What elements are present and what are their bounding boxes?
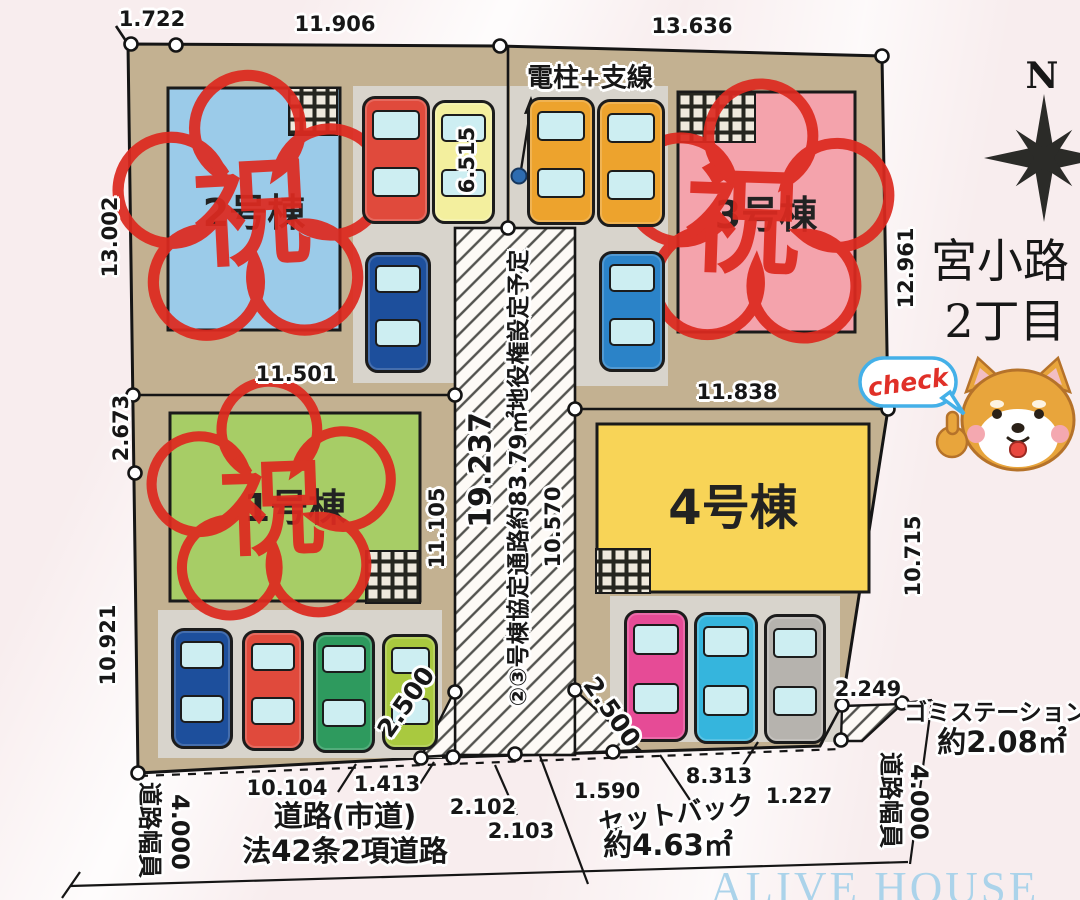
road-name-line2: 法42条2項道路 — [242, 828, 448, 870]
car-icon — [171, 628, 233, 749]
car-icon — [694, 612, 758, 744]
dim-road-length: 19.237 — [464, 412, 499, 528]
dim-road-side-lot4: 10.570 — [541, 486, 565, 567]
dim-bottom-2103: 2.103 — [488, 819, 554, 843]
car-icon — [313, 632, 375, 753]
road-width-value-right: 4.000 — [905, 764, 933, 840]
dim-bottom-2102: 2.102 — [450, 795, 516, 819]
dim-between-right: 11.838 — [696, 380, 777, 404]
svg-text:祝: 祝 — [190, 141, 315, 285]
car-icon — [527, 97, 595, 225]
building-4-label: 4号棟 — [668, 480, 798, 536]
dim-top-offset: 1.722 — [119, 7, 185, 31]
dim-top-lot3: 13.636 — [651, 14, 732, 38]
dim-right-lot3: 12.961 — [894, 227, 918, 308]
dim-left-lot1: 10.921 — [96, 604, 120, 685]
dim-right-lot4: 10.715 — [901, 515, 925, 596]
road-width-label-left: 道路幅員 — [135, 782, 170, 878]
compass-icon — [984, 94, 1080, 222]
compass-n-label: N — [1026, 55, 1059, 97]
setback-area: 約4.63㎡ — [603, 822, 733, 864]
dim-left-lot2: 13.002 — [98, 196, 122, 277]
garbage-area: 約2.08㎡ — [937, 719, 1067, 761]
dim-top-lot2: 11.906 — [294, 12, 375, 36]
car-icon — [242, 630, 304, 751]
utility-pole-label: 電柱+支線 — [527, 58, 653, 95]
car-icon — [597, 99, 665, 227]
dim-bottom-1227: 1.227 — [766, 784, 832, 808]
car-icon — [599, 251, 665, 372]
dim-between-left: 11.501 — [255, 362, 336, 386]
watermark: ALIVE HOUSE — [710, 862, 1039, 900]
dim-road-side-lot1: 11.105 — [425, 487, 449, 568]
dim-right-garbage: 2.249 — [835, 677, 901, 701]
dim-left-offset: 2.673 — [109, 395, 133, 461]
area-title-line1: 宮小路 — [931, 225, 1069, 291]
check-bubble: check — [860, 358, 964, 414]
car-icon — [362, 96, 430, 224]
dim-road-top: 6.515 — [455, 127, 479, 193]
area-title-line2: 2丁目 — [944, 285, 1065, 351]
svg-text:祝: 祝 — [217, 445, 327, 572]
garbage-station — [841, 704, 902, 741]
svg-text:祝: 祝 — [682, 153, 803, 292]
road-width-value-left: 4.000 — [166, 794, 194, 870]
easement-note: ②③号棟協定通路約83.79㎡地役権設定予定 — [499, 250, 533, 707]
car-icon — [764, 614, 826, 744]
site-plan: 2号棟 3号棟 1号棟 4号棟 — [0, 0, 1080, 900]
car-icon — [365, 252, 431, 373]
